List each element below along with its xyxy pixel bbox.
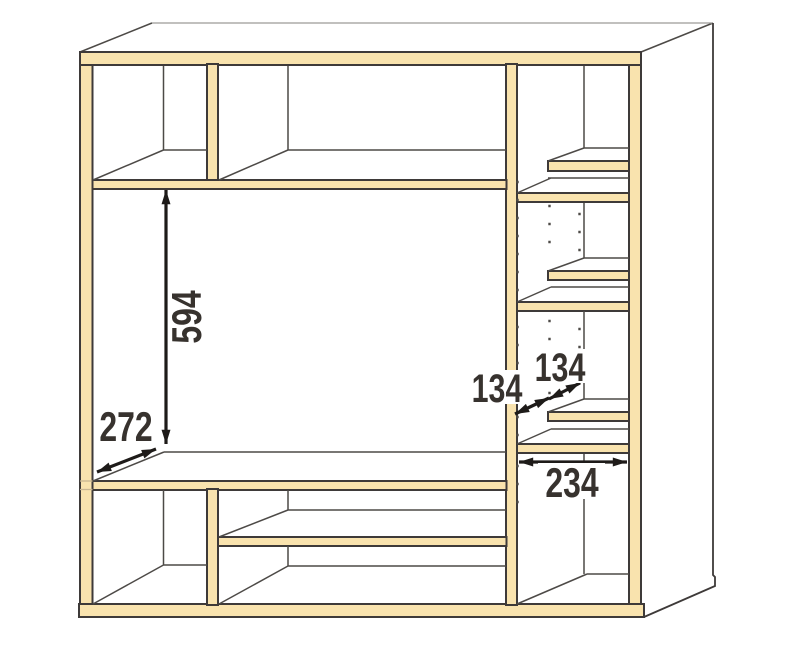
side-front-shelf-3 <box>517 444 629 453</box>
upper-shelf <box>93 180 507 189</box>
tv-shelf <box>93 481 507 490</box>
side-back-shelf-1 <box>548 161 629 171</box>
dimension-annotations: 594 272 134 134 234 <box>97 190 627 506</box>
side-front-shelf-2 <box>517 302 629 311</box>
side-column-divider <box>506 64 517 605</box>
diagram-canvas: 594 272 134 134 234 <box>0 0 800 660</box>
upper-divider <box>207 64 218 181</box>
furniture-dimension-diagram: 594 272 134 134 234 <box>0 0 800 660</box>
tv-shelf-surface-edges <box>93 452 506 481</box>
side-front-shelf-1 <box>517 193 629 202</box>
dimension-label-272: 272 <box>99 403 152 450</box>
side-column-mid-interior <box>517 203 629 302</box>
right-stile <box>629 63 641 617</box>
cubby-lower-mid-upper-interior <box>219 490 506 537</box>
side-back-shelf-3 <box>548 412 629 421</box>
cubby-lower-left-interior <box>93 490 207 604</box>
dimension-label-234: 234 <box>545 459 598 506</box>
top-rail <box>80 52 641 65</box>
cubby-top-left-interior <box>93 66 207 180</box>
shelf-pin-holes <box>518 181 580 506</box>
dimension-label-134-right: 134 <box>535 345 586 390</box>
cabinet-side-face <box>641 23 715 617</box>
dimension-arrow-272 <box>97 449 156 472</box>
side-column-top-interior <box>517 66 629 193</box>
left-stile <box>80 52 93 617</box>
lower-mid-shelf <box>218 537 507 546</box>
bottom-rail <box>79 604 644 617</box>
dimension-label-134-left: 134 <box>472 366 523 411</box>
side-back-shelf-2 <box>548 271 629 280</box>
cubby-top-mid-interior <box>219 66 506 180</box>
cabinet-top-face <box>80 23 713 52</box>
cubby-lower-mid-lower-interior <box>219 546 506 604</box>
dimension-label-594: 594 <box>163 290 210 343</box>
lower-divider <box>207 489 218 605</box>
